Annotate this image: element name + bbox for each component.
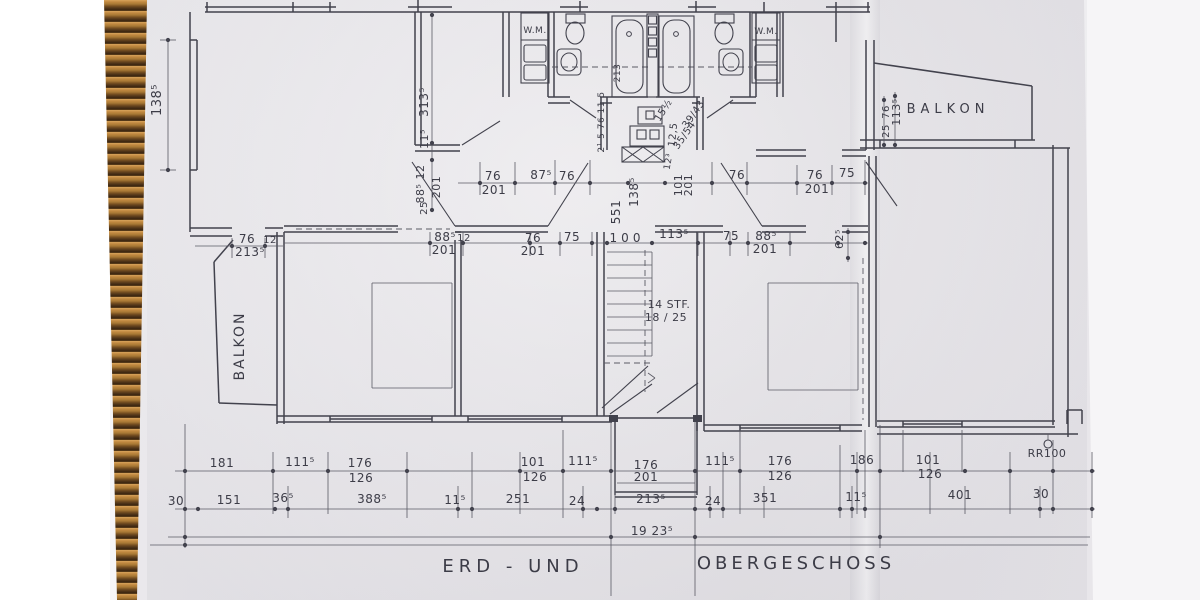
dimension-label: 76 [525, 231, 541, 245]
washing-machine-right [755, 45, 777, 62]
stair-note: 14 STF. [648, 298, 691, 311]
dimension-label: 126 [349, 471, 373, 485]
sink-left [561, 53, 577, 71]
dimension-dot [605, 241, 609, 245]
dimension-label: 75 [723, 229, 739, 243]
dimension-dot [609, 469, 613, 473]
dimension-label: 176 [348, 456, 372, 470]
dimension-label: 75 [564, 230, 580, 244]
dimension-label: 76 [729, 168, 745, 182]
dimension-label: 213 [613, 64, 623, 83]
dimension-label: 138⁵ [150, 84, 165, 116]
door-swing-line [570, 100, 596, 118]
dimension-label: 201 [430, 176, 443, 199]
sink-right [723, 53, 739, 71]
dimension-label: 111⁵ [285, 455, 315, 469]
dimension-label: 201 [805, 182, 829, 196]
dimension-dot [693, 507, 697, 511]
dimension-dot [1090, 469, 1094, 473]
dimension-label: 113⁵ [890, 98, 903, 125]
dimension-dot [963, 469, 967, 473]
dimension-label: 213⁵ [636, 492, 666, 506]
dimension-dot [788, 241, 792, 245]
chimney-flue [622, 147, 664, 162]
dimension-dot [838, 507, 842, 511]
dimension-label: 76 [559, 169, 575, 183]
dimension-label: 30 [1033, 487, 1049, 501]
room-label-wm-left: W.M. [523, 26, 546, 36]
dimension-dot [430, 208, 434, 212]
dimension-label: 181 [210, 456, 234, 470]
dimension-label: 213⁵ [235, 245, 265, 259]
dimension-dot [878, 535, 882, 539]
dimension-dot [846, 256, 850, 260]
dimension-label: 25 [419, 201, 430, 215]
room-label-balkon-right: BALKON [907, 102, 990, 117]
washing-machine-left [524, 65, 546, 80]
dimension-dot [721, 507, 725, 511]
door-swing-line [707, 100, 733, 118]
wall-line [219, 403, 277, 405]
dimension-dot [609, 535, 613, 539]
dimension-label: 100 [610, 231, 645, 245]
dimension-dot [830, 181, 834, 185]
dimension-label: 12 [457, 233, 471, 244]
porch-pier [609, 415, 618, 422]
dimension-label: 201 [482, 183, 506, 197]
dimension-label: 201 [432, 243, 456, 257]
dimension-dot [430, 13, 434, 17]
dimension-dot [613, 507, 617, 511]
room-label-balkon-left: BALKON [232, 312, 248, 381]
dimension-dot [326, 469, 330, 473]
dimension-dot [878, 469, 882, 473]
dimension-label: 76 [485, 169, 501, 183]
dimension-dot [513, 181, 517, 185]
dimension-dot [430, 158, 434, 162]
dimension-label: 111⁵ [705, 454, 735, 468]
dimension-dot [863, 507, 867, 511]
dimension-label: 201 [521, 244, 545, 258]
chimney-box [650, 130, 659, 139]
dimension-label: 12³ [663, 153, 676, 171]
bathtub-right-drain [674, 32, 679, 37]
dimension-label: 176 [768, 454, 792, 468]
toilet-right [715, 22, 733, 44]
door-swing-line [610, 384, 652, 414]
floor-plan-drawing: 138⁵BALKON76213⁵12313⁵11⁵88⁵ 1220125W.M.… [0, 0, 1200, 600]
dimension-label: 111⁵ [568, 454, 598, 468]
dimension-label: 24 [569, 494, 585, 508]
dimension-label: 30 [168, 494, 184, 508]
porch-pier [693, 415, 702, 422]
plan-title-left: ERD - UND [442, 556, 583, 577]
dimension-dot [863, 241, 867, 245]
dimension-label: 113⁵ [659, 227, 689, 241]
dimension-dot [863, 181, 867, 185]
dimension-dot [693, 469, 697, 473]
stair-note: 18 / 25 [645, 311, 687, 324]
room-label-wm-right: W.M. [754, 27, 777, 37]
dimension-label: 201 [753, 242, 777, 256]
plumbing-shaft-box [649, 27, 657, 35]
dimension-label: 75 [839, 166, 855, 180]
dimension-label: 201 [634, 470, 658, 484]
dimension-label: 101 [916, 453, 940, 467]
dimension-label: 62⁵ [833, 229, 846, 249]
dimension-dot [882, 143, 886, 147]
dimension-label: 11⁵ [444, 493, 466, 507]
dimension-dot [850, 507, 854, 511]
plumbing-shaft-box [649, 38, 657, 46]
dimension-label: 201 [682, 174, 695, 197]
dimension-dot [855, 469, 859, 473]
chimney-box [637, 130, 646, 139]
dimension-dot [1051, 507, 1055, 511]
door-swing-line [657, 383, 698, 413]
dimension-label: 151 [217, 493, 241, 507]
dimension-dot [893, 143, 897, 147]
dimension-label: 101 [521, 455, 545, 469]
wall-line [874, 63, 1032, 86]
dimension-label: 388⁵ [357, 492, 387, 506]
dimension-dot [696, 241, 700, 245]
dimension-dot [196, 507, 200, 511]
dimension-dot [846, 230, 850, 234]
dimension-dot [663, 181, 667, 185]
dimension-dot [1008, 469, 1012, 473]
dimension-label: 24 [705, 494, 721, 508]
dimension-dot [183, 543, 187, 547]
dimension-dot [745, 181, 749, 185]
dimension-dot [561, 469, 565, 473]
dimension-dot [166, 38, 170, 42]
drain-label: RR100 [1028, 447, 1067, 460]
dimension-dot [693, 535, 697, 539]
dimension-dot [795, 181, 799, 185]
wall-line [214, 240, 233, 262]
door-swing-line [602, 366, 648, 408]
washing-machine-left [521, 13, 549, 83]
dimension-dot [588, 181, 592, 185]
dimension-label: 12 [263, 235, 277, 246]
dimension-dot [456, 507, 460, 511]
dimension-dot [405, 469, 409, 473]
door-swing-line [462, 121, 500, 145]
dimension-label: 19 23⁵ [631, 524, 673, 538]
washing-machine-right [755, 65, 777, 80]
dimension-dot [230, 244, 234, 248]
dimension-label: 126 [523, 470, 547, 484]
dimension-label: 401 [948, 488, 972, 502]
dimension-label: 87⁵ [530, 168, 552, 182]
dimension-dot [273, 507, 277, 511]
dimension-dot [650, 241, 654, 245]
dimension-label: 251 [506, 492, 530, 506]
dimension-dot [553, 181, 557, 185]
dimension-dot [183, 535, 187, 539]
dimension-dot [166, 168, 170, 172]
plumbing-shaft-box [649, 49, 657, 57]
dimension-dot [595, 507, 599, 511]
dimension-dot [1038, 507, 1042, 511]
dimension-label: 11⁵ [418, 129, 431, 149]
dimension-dot [271, 469, 275, 473]
dimension-label: 88⁵ 12 [414, 165, 427, 204]
dimension-line [648, 378, 655, 383]
door-swing-line [866, 162, 897, 206]
dimension-label: 2¹ 5 76 11 5 [597, 91, 607, 152]
dimension-dot [183, 469, 187, 473]
dimension-label: 138⁵ [627, 177, 641, 207]
dimension-label: 126 [768, 469, 792, 483]
bathtub-right [663, 20, 690, 93]
dimension-dot [518, 469, 522, 473]
dimension-label: 351 [753, 491, 777, 505]
dimension-dot [738, 469, 742, 473]
dimension-label: 76 [807, 168, 823, 182]
dimension-label: 15½ [652, 97, 675, 124]
dimension-label: 551 [609, 200, 623, 224]
dimension-label: 36⁵ [272, 491, 294, 505]
dimension-dot [558, 241, 562, 245]
dimension-label: 88⁵ [755, 229, 777, 243]
toilet-left [566, 22, 584, 44]
plan-title-right: OBERGESCHOSS [697, 553, 895, 574]
dimension-line [648, 373, 655, 378]
dimension-dot [590, 241, 594, 245]
bathtub-right [659, 16, 694, 97]
photograph-of-floor-plan: 138⁵BALKON76213⁵12313⁵11⁵88⁵ 1220125W.M.… [0, 0, 1200, 600]
dimension-label: 76 [239, 232, 255, 246]
dimension-dot [746, 241, 750, 245]
dimension-dot [1090, 507, 1094, 511]
dimension-dot [710, 181, 714, 185]
bathtub-left [612, 16, 647, 97]
plumbing-shaft-box [649, 16, 657, 24]
dimension-label: 186 [850, 453, 874, 467]
wall-line [214, 262, 219, 403]
dimension-dot [882, 98, 886, 102]
dimension-dot [470, 507, 474, 511]
dimension-dot [1051, 469, 1055, 473]
dimension-dot [286, 507, 290, 511]
bathtub-left-drain [627, 32, 632, 37]
dimension-dot [893, 94, 897, 98]
dimension-label: 11⁵ [845, 490, 867, 504]
dimension-label: 126 [918, 467, 942, 481]
dimension-label: 313⁵ [417, 87, 431, 117]
dimension-label: 88⁵ [434, 230, 456, 244]
washing-machine-left [524, 45, 546, 62]
